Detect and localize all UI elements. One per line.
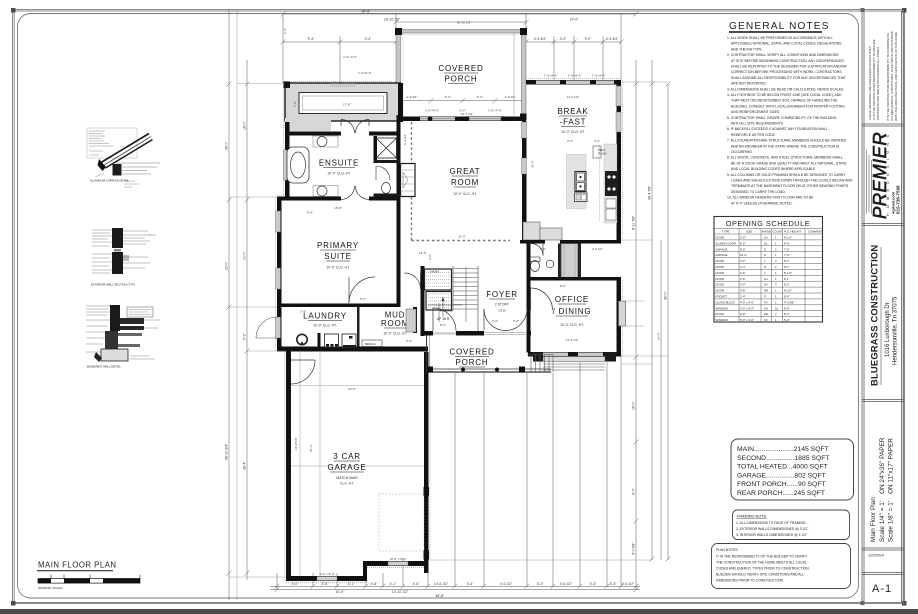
svg-text:3'-3": 3'-3": [560, 37, 568, 41]
svg-text:8. ALL WOOD, CONCRETE, AND ST: 8. ALL WOOD, CONCRETE, AND STEEL STRUCTU…: [727, 156, 843, 160]
svg-text:MATCH MAIN: MATCH MAIN: [336, 476, 358, 480]
svg-text:CLG: CLG: [499, 309, 506, 313]
svg-text:5'-2": 5'-2": [243, 332, 247, 340]
svg-text:7'-0": 7'-0": [784, 247, 790, 251]
svg-text:GARAGE: GARAGE: [327, 463, 366, 472]
svg-text:CODES AND ENERGY TYPES PRIOR T: CODES AND ENERGY TYPES PRIOR TO CONSTRUC…: [716, 567, 810, 571]
svg-text:9'-4": 9'-4": [365, 37, 373, 41]
svg-text:FOYER: FOYER: [486, 290, 518, 299]
svg-text:58'-10 3/4": 58'-10 3/4": [225, 443, 229, 460]
svg-text:4'-6": 4'-6": [413, 582, 421, 586]
svg-text:9'-4": 9'-4": [308, 37, 316, 41]
svg-text:TYPE: TYPE: [722, 229, 729, 233]
svg-text:SIZE: SIZE: [746, 229, 752, 233]
svg-text:38'-0": 38'-0": [225, 141, 229, 150]
svg-text:9'-0" x 8'-0": 9'-0" x 8'-0": [319, 572, 334, 576]
svg-text:WITH ALL SITE REQUIREMENTS.: WITH ALL SITE REQUIREMENTS.: [731, 122, 784, 126]
svg-text:THE CONSTRUCTION OF THE HOME M: THE CONSTRUCTION OF THE HOME MEETS ALL L…: [716, 561, 807, 565]
svg-text:BASEMENT WALL DETAIL: BASEMENT WALL DETAIL: [87, 365, 121, 369]
svg-text:8'-1": 8'-1": [784, 277, 790, 281]
svg-text:10'-0": 10'-0": [243, 251, 247, 260]
svg-text:DOOR: DOOR: [716, 277, 724, 281]
svg-text:14'-6 1/2": 14'-6 1/2": [434, 582, 449, 586]
svg-text:5'-0" x 3'-0": 5'-0" x 3'-0": [740, 318, 754, 322]
svg-text:TOTAL HEATED...4000 SQFT: TOTAL HEATED...4000 SQFT: [737, 464, 828, 471]
svg-text:1'-0"+4'-6": 1'-0"+4'-6": [343, 55, 357, 59]
svg-text:LH: LH: [764, 277, 768, 281]
svg-text:1'-0"x4'-6": 1'-0"x4'-6": [544, 74, 557, 78]
svg-text:8'-1": 8'-1": [784, 265, 790, 269]
svg-text:GREAT: GREAT: [450, 167, 481, 176]
svg-text:5'-0": 5'-0": [540, 247, 546, 251]
svg-text:ARE NOT REPORTED.: ARE NOT REPORTED.: [731, 82, 767, 86]
svg-text:AT SITE BEFORE BEGINNING CONST: AT SITE BEFORE BEGINNING CONSTRUCTION. A…: [731, 59, 844, 63]
svg-text:4'-6 3/4": 4'-6 3/4": [534, 37, 547, 41]
svg-text:10'-0" CLG. HT.: 10'-0" CLG. HT.: [327, 172, 351, 176]
svg-text:4'-8 3/4": 4'-8 3/4": [407, 95, 418, 99]
svg-text:4'-0": 4'-0": [428, 254, 432, 260]
svg-text:2. CONTRACTOR SHALL VERIFY AL: 2. CONTRACTOR SHALL VERIFY ALL CONDITION…: [727, 53, 839, 57]
svg-text:2'-4": 2'-4": [740, 265, 746, 269]
svg-text:4'-0 5/8": 4'-0 5/8": [632, 542, 636, 555]
svg-text:3. INTERIOR WALLS DIMENSIONED: 3. INTERIOR WALLS DIMENSIONED @ 3 1/2": [736, 533, 808, 537]
svg-text:3'-0": 3'-0": [513, 319, 519, 323]
svg-text:1. ALL WORK SHALL BE PREFORME: 1. ALL WORK SHALL BE PREFORMED IN ACCORD…: [727, 36, 833, 40]
svg-text:43'-0": 43'-0": [664, 291, 668, 300]
svg-text:Scale 1/8" = 1' ON 11"x17": Scale 1/8" = 1' ON 11"x17" PAPER: [888, 438, 895, 542]
svg-text:5. CONTRACTOR SHALL INSURE CO: 5. CONTRACTOR SHALL INSURE COMPATIBILITY…: [727, 116, 837, 120]
svg-text:CONSTRUCTION MEETS OR EXCEEDS: CONSTRUCTION MEETS OR EXCEEDS ALL CODES: [876, 47, 880, 120]
svg-text:WITH THE ARCHITECTURAL AND AES: WITH THE ARCHITECTURAL AND AESTHETICS OF…: [894, 32, 898, 121]
svg-text:7. ALL FOUNDATION AND STRUCTU: 7. ALL FOUNDATION AND STRUCTURAL MEMBERS…: [727, 139, 847, 143]
svg-text:8'-0": 8'-0": [784, 306, 790, 310]
svg-text:3'-0" x 5'-0": 3'-0" x 5'-0": [740, 306, 754, 310]
svg-text:16'-0 5/8": 16'-0 5/8": [294, 437, 298, 450]
svg-text:LAUNDRY: LAUNDRY: [303, 312, 347, 321]
svg-text:PROJ: PROJ: [598, 148, 606, 152]
svg-text:GARAGE...............802 SQFT: GARAGE...............802 SQFT: [737, 472, 826, 479]
svg-text:FRAMING NOTE:: FRAMING NOTE:: [737, 515, 767, 519]
svg-text:SHOES: SHOES: [430, 270, 439, 274]
svg-text:2'-6 1/2": 2'-6 1/2": [592, 247, 603, 251]
svg-text:4. ALL FOOTINGS TO BE BELOW F: 4. ALL FOOTINGS TO BE BELOW FROST LINE (…: [727, 93, 842, 97]
svg-text:4'-6 1/2": 4'-6 1/2": [500, 582, 513, 586]
svg-text:R.O. HEIGHT: R.O. HEIGHT: [784, 229, 801, 233]
svg-text:BUILDING. CONSULT WITH LOCAL: BUILDING. CONSULT WITH LOCAL ENGINEER FO…: [731, 104, 845, 108]
svg-text:9'-0": 9'-0": [585, 37, 593, 41]
svg-text:84'-8": 84'-8": [362, 10, 371, 14]
svg-text:16'-4": 16'-4": [657, 332, 661, 340]
svg-text:8'-1": 8'-1": [784, 312, 790, 316]
svg-text:3'-3": 3'-3": [590, 582, 598, 586]
svg-text:RH: RH: [764, 289, 768, 293]
svg-text:COUNT: COUNT: [773, 229, 783, 233]
svg-text:8'-1/2": 8'-1/2": [784, 289, 792, 293]
svg-text:2'-4": 2'-4": [300, 310, 306, 314]
svg-text:3. ALL DIMENSIONS SHALL BE RE: 3. ALL DIMENSIONS SHALL BE READ OR CALCU…: [727, 87, 845, 91]
svg-text:COMMENT: COMMENT: [808, 229, 823, 233]
svg-text:PLAN NOTES:: PLAN NOTES:: [716, 548, 738, 552]
svg-text:3'-4": 3'-4": [467, 582, 475, 586]
svg-text:8'-1": 8'-1": [784, 259, 790, 263]
svg-text:34'-0": 34'-0": [531, 160, 535, 168]
svg-text:16'-0" x 8'-0": 16'-0" x 8'-0": [390, 557, 407, 561]
svg-text:10'-0" CLG. HT.: 10'-0" CLG. HT.: [313, 324, 337, 328]
svg-text:Main Floor Plan: Main Floor Plan: [870, 497, 877, 542]
svg-text:SLIDING DOOR: SLIDING DOOR: [716, 241, 736, 245]
svg-text:10'-0" CLG. HT.: 10'-0" CLG. HT.: [560, 323, 584, 327]
svg-text:17'-8": 17'-8": [343, 103, 351, 107]
svg-text:6'-0": 6'-0": [460, 109, 466, 113]
svg-text:R: R: [764, 265, 766, 269]
svg-text:REAR PORCH......245 SQFT: REAR PORCH......245 SQFT: [737, 490, 825, 497]
svg-text:10: 10: [775, 306, 779, 310]
svg-text:1/22/2024: 1/22/2024: [868, 554, 884, 558]
svg-text:8'-0": 8'-0": [784, 241, 790, 245]
svg-text:16'-8": 16'-8": [334, 206, 342, 210]
svg-text:615-738-7598: 615-738-7598: [896, 185, 901, 214]
svg-text:CLG. HT.: CLG. HT.: [340, 482, 354, 486]
svg-text:DOOR: DOOR: [716, 289, 724, 293]
svg-text:4'-8 3/4": 4'-8 3/4": [505, 95, 516, 99]
svg-text:ENSUITE: ENSUITE: [319, 159, 359, 168]
svg-text:36'-4 7/8": 36'-4 7/8": [648, 185, 652, 200]
svg-text:3'-4": 3'-4": [537, 582, 545, 586]
svg-text:ROOM: ROOM: [451, 178, 479, 187]
svg-text:ROOM: ROOM: [381, 319, 409, 328]
svg-text:DESIGNED TO CARRY THE LOAD.: DESIGNED TO CARRY THE LOAD.: [731, 190, 786, 194]
svg-text:DIMENSIONS PRIOR TO CONSTRUCTI: DIMENSIONS PRIOR TO CONSTRUCTION.: [716, 579, 784, 583]
svg-text:4'-6": 4'-6": [371, 582, 379, 586]
svg-text:6. IF BACKFILL EXCEEDS 4' AGA: 6. IF BACKFILL EXCEEDS 4' AGAINST ANY FO…: [727, 127, 829, 131]
svg-text:BUILDER SHOULD VERIFY SITE CON: BUILDER SHOULD VERIFY SITE CONDITIONS AN…: [716, 573, 804, 577]
svg-text:PORCH: PORCH: [445, 75, 478, 84]
svg-text:CORRECTION BEFORE PROCEEDING W: CORRECTION BEFORE PROCEEDING WITH WORK. …: [731, 70, 842, 74]
svg-text:84'-8": 84'-8": [436, 594, 445, 598]
svg-text:6'-4 3/4": 6'-4 3/4": [403, 134, 407, 145]
svg-text:COVERED: COVERED: [438, 64, 483, 73]
svg-text:14'-10 1/2": 14'-10 1/2": [392, 590, 409, 594]
svg-text:AND AN ENGINEER IN THE STATE W: AND AN ENGINEER IN THE STATE WHERE THE C…: [731, 144, 840, 148]
svg-text:7'-8": 7'-8": [293, 101, 297, 107]
svg-text:5'-0": 5'-0": [360, 297, 366, 301]
svg-text:DOOR: DOOR: [716, 283, 724, 287]
svg-text:7'-0": 7'-0": [784, 253, 790, 257]
svg-text:Scale 1/4" = 1' ON 24"x36": Scale 1/4" = 1' ON 24"x36" PAPER: [879, 437, 886, 542]
svg-text:1'-0"x4'-6": 1'-0"x4'-6": [568, 74, 581, 78]
svg-text:ALUMINUM CORNICE DETAIL: ALUMINUM CORNICE DETAIL: [90, 179, 129, 183]
svg-text:6'-0": 6'-0": [740, 241, 746, 245]
svg-text:2 STORY: 2 STORY: [495, 303, 510, 307]
svg-text:IT IS THE RESPONSIBILITY OF TH: IT IS THE RESPONSIBILITY OF THE BUILDER …: [716, 555, 808, 559]
svg-text:4'-6 1/2": 4'-6 1/2": [560, 582, 573, 586]
svg-text:H O M E D E S I G N S: H O M E D E S I G N S: [886, 133, 890, 216]
svg-text:4'-6 1/2": 4'-6 1/2": [622, 582, 635, 586]
svg-text:Hendersonville, Tn 37075: Hendersonville, Tn 37075: [893, 296, 899, 365]
svg-text:AND THE/VIA TYPE.: AND THE/VIA TYPE.: [731, 47, 763, 51]
svg-text:2'-4": 2'-4": [740, 295, 746, 299]
svg-text:14'-6": 14'-6": [419, 251, 427, 255]
svg-text:WINDOW: WINDOW: [716, 318, 729, 322]
svg-text:18'-0": 18'-0": [243, 121, 247, 130]
svg-text:3'-4": 3'-4": [406, 339, 412, 343]
svg-text:SL: SL: [764, 241, 768, 245]
svg-text:10'-0": 10'-0": [336, 590, 345, 594]
svg-text:3'-0": 3'-0": [740, 283, 746, 287]
svg-text:9'-0": 9'-0": [632, 487, 636, 495]
svg-text:-FAST: -FAST: [560, 118, 587, 127]
svg-text:3'-3": 3'-3": [610, 582, 618, 586]
svg-text:8'-0": 8'-0": [784, 295, 790, 299]
svg-text:SH: SH: [764, 306, 768, 310]
svg-text:14'-3 1/2": 14'-3 1/2": [566, 338, 579, 342]
svg-text:1016 Luxborough Dr: 1016 Luxborough Dr: [885, 302, 891, 357]
svg-text:25'-6": 25'-6": [309, 444, 313, 452]
svg-text:GARAGE: GARAGE: [716, 247, 728, 251]
svg-text:18'-10 1/2": 18'-10 1/2": [384, 18, 401, 22]
svg-text:8'-1/2": 8'-1/2": [784, 271, 792, 275]
svg-text:/ DINING: / DINING: [553, 307, 592, 316]
svg-text:A-1: A-1: [872, 583, 892, 595]
svg-text:FX: FX: [764, 318, 768, 322]
svg-text:14'-0 1/2": 14'-0 1/2": [567, 95, 580, 99]
svg-text:OCCURRING.: OCCURRING.: [731, 150, 753, 154]
svg-text:4'-6 3/4": 4'-6 3/4": [606, 37, 619, 41]
svg-text:BREAK: BREAK: [557, 107, 588, 116]
svg-text:5'-0": 5'-0": [477, 95, 483, 99]
svg-text:10'-0" CLG. HT.: 10'-0" CLG. HT.: [561, 130, 585, 134]
svg-text:2'-8": 2'-8": [740, 289, 746, 293]
svg-text:4'-0" x 4'-0": 4'-0" x 4'-0": [740, 300, 754, 304]
svg-text:EXTERIOR WALL SECTION (TYP): EXTERIOR WALL SECTION (TYP): [91, 283, 135, 287]
svg-text:P: P: [764, 295, 766, 299]
svg-text:8'-0": 8'-0": [440, 323, 446, 327]
svg-text:3'-0": 3'-0": [567, 139, 573, 143]
svg-text:FX: FX: [764, 300, 768, 304]
svg-text:RH: RH: [764, 312, 768, 316]
svg-text:TERMINATE AT THE BASEMENT FLOO: TERMINATE AT THE BASEMENT FLOOR OR AT OT…: [731, 184, 849, 188]
svg-text:1'-0"+4'-6": 1'-0"+4'-6": [488, 109, 502, 113]
svg-text:8'-2": 8'-2": [784, 283, 790, 287]
svg-text:AND REINFORCEMENT SIZES.: AND REINFORCEMENT SIZES.: [731, 110, 780, 114]
svg-text:FLUSH: FLUSH: [598, 152, 607, 156]
svg-text:SUITE: SUITE: [324, 252, 352, 261]
svg-text:GRAPHIC SCALE: GRAPHIC SCALE: [38, 586, 62, 590]
svg-text:DOOR: DOOR: [716, 236, 724, 240]
svg-text:HINGE: HINGE: [762, 229, 771, 233]
svg-text:GENERAL NOTES: GENERAL NOTES: [729, 21, 830, 32]
svg-text:AND LOCAL BUILDING CODES WHERE: AND LOCAL BUILDING CODES WHERE APPLICABL…: [731, 167, 816, 171]
svg-text:THAT REST ON UNDISTURBED SOIL: THAT REST ON UNDISTURBED SOIL CAPABLE OF…: [731, 99, 838, 103]
svg-text:10'-0" CLG. HT.: 10'-0" CLG. HT.: [326, 266, 350, 270]
svg-text:UP 18 R: UP 18 R: [437, 317, 450, 321]
svg-text:DOOR: DOOR: [716, 271, 724, 275]
svg-text:LH: LH: [764, 283, 768, 287]
svg-text:1'-0"x4'-6": 1'-0"x4'-6": [592, 74, 605, 78]
svg-text:8'-4": 8'-4": [307, 211, 313, 215]
svg-text:18'-10 1/2": 18'-10 1/2": [457, 21, 471, 25]
svg-text:PRIMARY: PRIMARY: [317, 241, 359, 250]
svg-text:8'-1/2": 8'-1/2": [784, 236, 792, 240]
svg-text:LH: LH: [764, 236, 768, 240]
svg-text:DOOR: DOOR: [716, 312, 724, 316]
svg-text:15'-7 3/4": 15'-7 3/4": [461, 112, 474, 116]
svg-text:BENCH: BENCH: [365, 342, 376, 346]
svg-text:BLUEGRASS CONSTRUCTION: BLUEGRASS CONSTRUCTION: [869, 245, 880, 386]
svg-text:GARAGE: GARAGE: [716, 253, 728, 257]
svg-text:9'-0": 9'-0": [529, 299, 533, 305]
svg-text:MAIN FLOOR PLAN: MAIN FLOOR PLAN: [38, 561, 117, 570]
svg-text:REINFORCE AS PER CODE.: REINFORCE AS PER CODE.: [731, 133, 776, 137]
svg-text:1. ALL DIMENSIONS TO FACE OF F: 1. ALL DIMENSIONS TO FACE OF FRAMING.: [736, 521, 806, 525]
svg-text:OFFICE: OFFICE: [555, 295, 589, 304]
svg-text:16'-0": 16'-0": [632, 401, 636, 410]
svg-text:2'-8": 2'-8": [740, 277, 746, 281]
svg-text:2'-2": 2'-2": [740, 259, 746, 263]
svg-text:22'-0": 22'-0": [225, 261, 229, 270]
svg-text:4'-1": 4'-1": [390, 582, 398, 586]
svg-text:11'-0": 11'-0": [458, 235, 465, 239]
svg-text:9'-0": 9'-0": [740, 247, 746, 251]
svg-text:6'-0": 6'-0": [560, 284, 566, 288]
svg-text:POCKET: POCKET: [716, 295, 728, 299]
svg-text:WINDOW: WINDOW: [716, 306, 729, 310]
svg-text:PORCH: PORCH: [456, 358, 489, 367]
svg-text:5'-0": 5'-0": [445, 95, 451, 99]
svg-text:DOOR: DOOR: [716, 259, 724, 263]
svg-text:10'-0" CLG. HT.: 10'-0" CLG. HT.: [383, 332, 407, 336]
svg-text:9. ALL COLUMNS OR SOLID FRAMI: 9. ALL COLUMNS OR SOLID FRAMING SHOULD B…: [727, 173, 846, 177]
svg-text:SHALL ASSUME ALL RESPONSIBILIT: SHALL ASSUME ALL RESPONSIBILITY FOR ANY …: [731, 76, 846, 80]
svg-text:19'-0": 19'-0": [570, 18, 579, 22]
svg-text:AT 8'-0" UNLESS OTHERWISE NOTE: AT 8'-0" UNLESS OTHERWISE NOTED.: [731, 201, 792, 205]
svg-text:MAIN.....................2145: MAIN.....................2145 SQFT: [737, 446, 829, 453]
svg-text:2'-8": 2'-8": [740, 312, 746, 316]
svg-text:APPLICABLE NATIONAL, STATE, AN: APPLICABLE NATIONAL, STATE, AND LOCAL CO…: [731, 42, 842, 46]
svg-text:1'-0"x4'-6": 1'-0"x4'-6": [358, 71, 371, 75]
svg-text:2'-6": 2'-6": [740, 271, 746, 275]
svg-text:1'-0": 1'-0": [283, 28, 287, 34]
svg-text:36'-4": 36'-4": [243, 461, 247, 470]
svg-text:BE OF A GOOD GRADE AND QUALITY: BE OF A GOOD GRADE AND QUALITY AND MEET …: [731, 161, 847, 165]
svg-text:9'-0": 9'-0": [594, 139, 600, 143]
svg-text:DOOR: DOOR: [716, 265, 724, 269]
svg-text:SECOND...............1885 SQFT: SECOND...............1885 SQFT: [737, 455, 830, 462]
svg-text:21'-0": 21'-0": [348, 387, 356, 391]
svg-text:10'-0" CLG. HT.: 10'-0" CLG. HT.: [453, 192, 477, 196]
svg-text:4'-0 5/8": 4'-0 5/8": [784, 300, 794, 304]
svg-text:16'-0": 16'-0": [740, 253, 747, 257]
svg-text:10. ALL WINDOW HEADERS FIRST F: 10. ALL WINDOW HEADERS FIRST FLOOR ARE T…: [727, 196, 814, 200]
svg-text:SHALL BE REPORTED TO THE DESIG: SHALL BE REPORTED TO THE DESIGNER FOR JU…: [731, 65, 847, 69]
svg-text:3 CAR: 3 CAR: [333, 452, 361, 461]
svg-text:1'-0"+4'-6": 1'-0"+4'-6": [425, 109, 439, 113]
svg-text:GLASS BLOCK: GLASS BLOCK: [716, 300, 736, 304]
svg-text:8'-11 7/8": 8'-11 7/8": [632, 215, 636, 230]
svg-text:COVERED: COVERED: [449, 348, 494, 357]
svg-text:3'-0": 3'-0": [492, 319, 498, 323]
svg-text:2. EXTERIOR WALLS DIMENSIONED: 2. EXTERIOR WALLS DIMENSIONED @ 3 1/2": [736, 527, 809, 531]
svg-text:5'-2": 5'-2": [784, 318, 790, 322]
svg-text:OPENING SCHEDULE: OPENING SCHEDULE: [726, 219, 810, 228]
svg-text:2'-0": 2'-0": [740, 236, 746, 240]
svg-text:FRONT PORCH......90 SQFT: FRONT PORCH......90 SQFT: [737, 481, 826, 488]
svg-text:LOADS AND SHOULD EXTEND DOWN T: LOADS AND SHOULD EXTEND DOWN THROUGH THE…: [731, 179, 853, 183]
